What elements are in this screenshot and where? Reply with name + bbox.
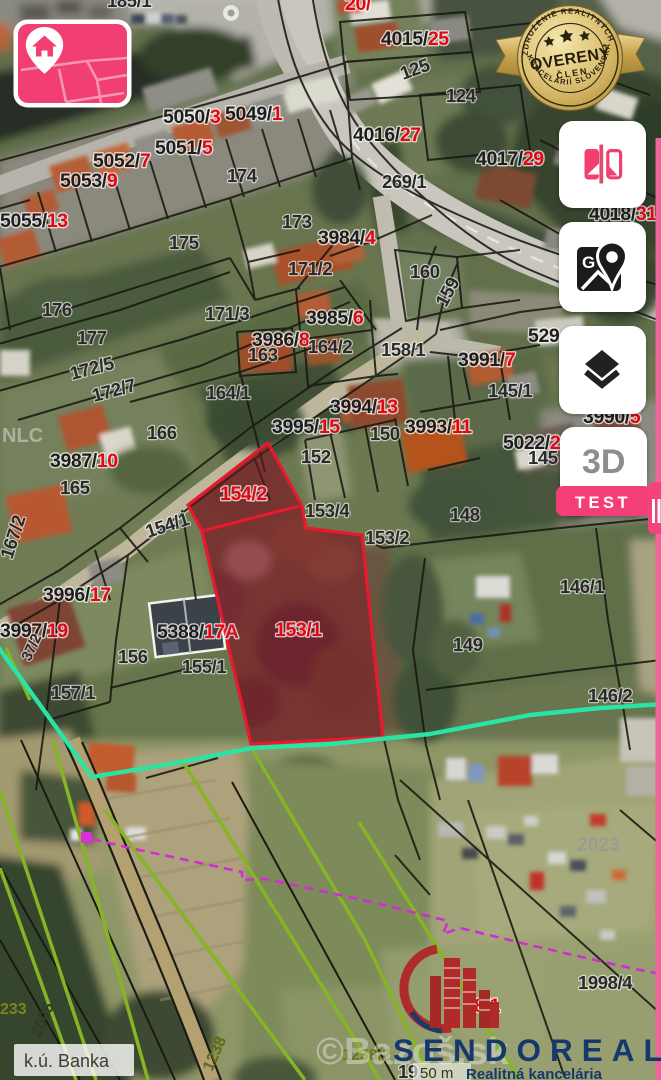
svg-text:153/1: 153/1 [275,619,322,641]
svg-text:G: G [582,253,595,272]
svg-text:5049/1: 5049/1 [225,103,283,125]
svg-text:5053/9: 5053/9 [60,170,118,192]
svg-text:153/4: 153/4 [305,500,350,521]
svg-text:3991/7: 3991/7 [458,349,515,371]
svg-text:269/1: 269/1 [382,171,426,192]
svg-text:177: 177 [77,327,107,348]
svg-text:150: 150 [370,423,400,444]
svg-text:5052/7: 5052/7 [93,150,150,172]
svg-text:154/2: 154/2 [220,483,267,505]
svg-text:1998/4: 1998/4 [578,972,633,993]
svg-text:164/2: 164/2 [308,336,352,357]
svg-text:NLC: NLC [2,425,43,447]
svg-text:3994/13: 3994/13 [330,396,398,418]
svg-text:4016/27: 4016/27 [353,124,421,146]
svg-text:157/1: 157/1 [51,682,95,703]
svg-text:176: 176 [42,299,72,320]
svg-text:164/1: 164/1 [206,382,250,403]
svg-text:3985/6: 3985/6 [306,307,364,329]
svg-text:145: 145 [528,447,558,468]
svg-text:3996/17: 3996/17 [43,584,111,606]
svg-text:5050/3: 5050/3 [163,106,221,128]
svg-text:174: 174 [227,165,258,186]
svg-text:SENDOREAL: SENDOREAL [393,1032,661,1068]
svg-text:5388/17A: 5388/17A [157,621,239,643]
svg-text:165: 165 [60,477,90,498]
svg-text:5051/5: 5051/5 [155,137,213,159]
svg-text:175: 175 [169,232,199,253]
svg-text:k.ú. Banka: k.ú. Banka [24,1051,110,1071]
svg-text:2023: 2023 [577,835,619,856]
svg-text:148: 148 [450,504,480,525]
svg-text:3984/4: 3984/4 [318,227,376,249]
svg-text:155/1: 155/1 [182,656,226,677]
svg-text:149: 149 [453,634,483,655]
svg-text:3987/10: 3987/10 [50,450,118,472]
svg-text:529: 529 [528,325,560,347]
svg-text:146/2: 146/2 [588,685,632,706]
svg-text:20/: 20/ [345,0,372,15]
svg-text:173: 173 [282,211,312,232]
svg-text:4015/25: 4015/25 [381,28,449,50]
svg-text:124: 124 [446,85,477,106]
svg-text:3993/11: 3993/11 [405,416,472,438]
svg-text:5055/13: 5055/13 [0,210,68,232]
svg-text:3995/15: 3995/15 [272,416,340,438]
svg-text:4017/29: 4017/29 [476,148,544,170]
svg-text:145/1: 145/1 [488,380,532,401]
svg-text:TEST: TEST [575,494,631,512]
svg-text:158/1: 158/1 [381,339,425,360]
svg-text:146/1: 146/1 [560,576,604,597]
svg-text:166: 166 [147,422,177,443]
svg-text:171/2: 171/2 [288,258,332,279]
svg-text:3D: 3D [582,443,625,481]
svg-text:156: 156 [118,646,148,667]
svg-text:160: 160 [410,261,440,282]
svg-text:163: 163 [248,344,278,365]
svg-text:233: 233 [0,1001,27,1018]
svg-text:153/2: 153/2 [365,527,409,548]
svg-text:185/1: 185/1 [107,0,151,11]
svg-text:171/3: 171/3 [205,303,249,324]
svg-text:Realitná kancelária: Realitná kancelária [466,1066,603,1080]
svg-text:152: 152 [301,446,331,467]
